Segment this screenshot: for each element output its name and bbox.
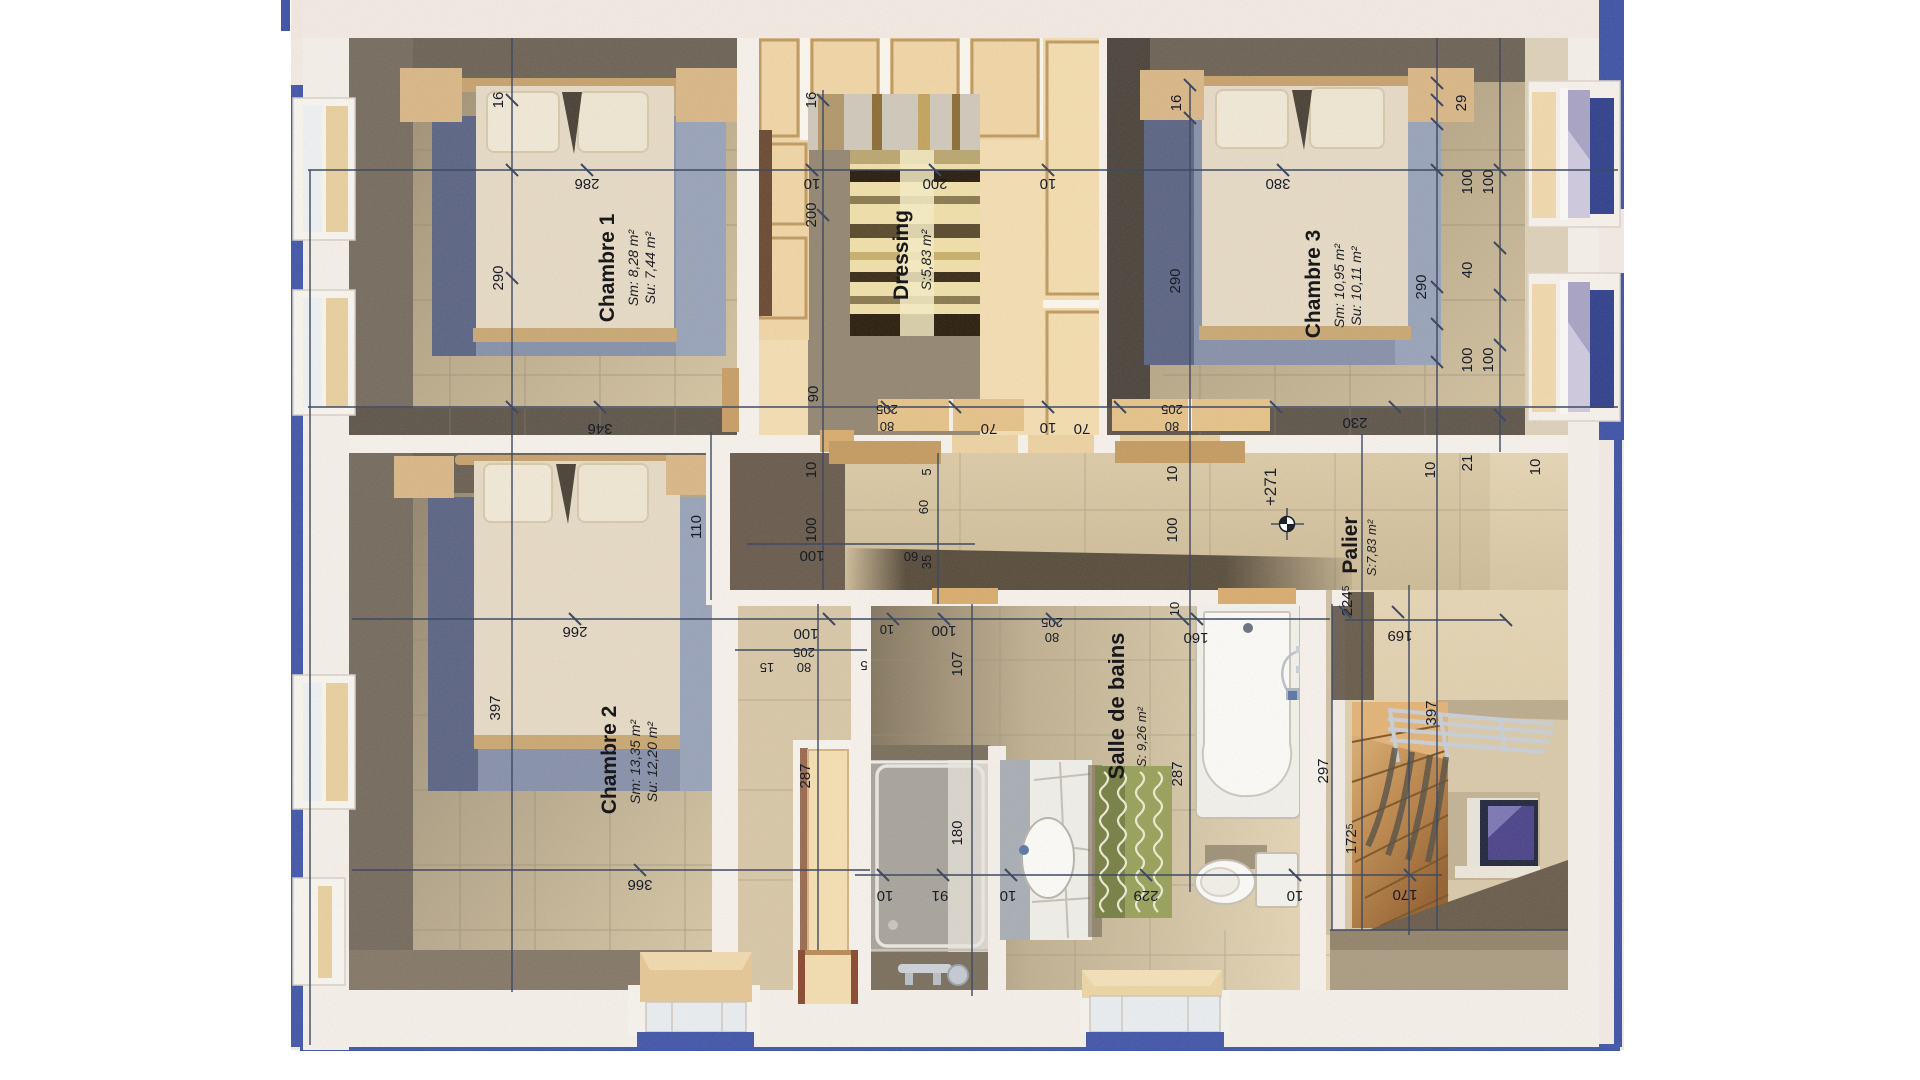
svg-text:5: 5 <box>860 658 867 673</box>
svg-text:100: 100 <box>803 517 820 542</box>
svg-text:10: 10 <box>803 462 820 479</box>
svg-text:170: 170 <box>1392 886 1417 903</box>
svg-text:290: 290 <box>1167 268 1184 293</box>
svg-text:10: 10 <box>1287 887 1304 904</box>
svg-text:229: 229 <box>1133 887 1158 904</box>
svg-text:10: 10 <box>1527 459 1544 476</box>
svg-text:16: 16 <box>1168 95 1185 112</box>
svg-text:100: 100 <box>931 622 956 639</box>
svg-text:290: 290 <box>1413 274 1430 299</box>
svg-text:10: 10 <box>877 887 894 904</box>
svg-text:287: 287 <box>1169 761 1186 786</box>
svg-text:10: 10 <box>1167 602 1182 616</box>
svg-text:205: 205 <box>1161 402 1183 417</box>
svg-text:5: 5 <box>919 468 934 475</box>
svg-text:70: 70 <box>1074 420 1091 437</box>
svg-text:80: 80 <box>1165 419 1179 434</box>
svg-text:205: 205 <box>793 645 815 660</box>
svg-text:100: 100 <box>1459 347 1476 372</box>
svg-text:10: 10 <box>1040 175 1057 192</box>
svg-text:10: 10 <box>880 622 894 637</box>
svg-text:15: 15 <box>760 660 774 675</box>
svg-text:40: 40 <box>1459 262 1476 279</box>
svg-text:286: 286 <box>574 175 599 192</box>
svg-text:266: 266 <box>562 623 587 640</box>
svg-text:205: 205 <box>1041 615 1063 630</box>
svg-text:10: 10 <box>1164 466 1181 483</box>
svg-text:16: 16 <box>490 92 507 109</box>
svg-text:70: 70 <box>981 420 998 437</box>
svg-text:100: 100 <box>1164 517 1181 542</box>
svg-text:80: 80 <box>1045 630 1059 645</box>
svg-text:205: 205 <box>876 402 898 417</box>
svg-text:10: 10 <box>1040 419 1057 436</box>
svg-text:60: 60 <box>916 500 931 514</box>
svg-text:110: 110 <box>688 515 705 539</box>
svg-text:80: 80 <box>880 419 894 434</box>
svg-text:60: 60 <box>904 549 918 564</box>
svg-text:230: 230 <box>1342 414 1367 431</box>
svg-text:287: 287 <box>797 763 814 788</box>
svg-text:290: 290 <box>490 265 507 290</box>
svg-text:100: 100 <box>1459 169 1476 194</box>
svg-text:10: 10 <box>1000 887 1017 904</box>
svg-text:21: 21 <box>1459 455 1476 472</box>
svg-text:380: 380 <box>1265 175 1290 192</box>
svg-text:200: 200 <box>803 202 820 227</box>
svg-text:100: 100 <box>793 625 818 642</box>
svg-text:90: 90 <box>805 386 822 403</box>
svg-text:397: 397 <box>1423 700 1440 725</box>
svg-text:160: 160 <box>1183 629 1208 646</box>
svg-text:91: 91 <box>932 887 949 904</box>
svg-text:35: 35 <box>919 555 934 569</box>
svg-text:29: 29 <box>1453 95 1470 112</box>
svg-text:397: 397 <box>487 695 504 720</box>
svg-text:200: 200 <box>922 175 947 192</box>
svg-text:10: 10 <box>804 175 821 192</box>
svg-text:100: 100 <box>1480 169 1497 194</box>
svg-text:107: 107 <box>949 651 966 676</box>
svg-text:366: 366 <box>627 876 652 893</box>
svg-text:100: 100 <box>799 547 824 564</box>
svg-text:346: 346 <box>587 420 612 437</box>
svg-text:297: 297 <box>1315 758 1332 783</box>
svg-text:10: 10 <box>1422 462 1439 479</box>
svg-text:80: 80 <box>797 660 811 675</box>
svg-text:100: 100 <box>1480 347 1497 372</box>
svg-text:180: 180 <box>949 820 966 845</box>
svg-text:169: 169 <box>1387 627 1412 644</box>
